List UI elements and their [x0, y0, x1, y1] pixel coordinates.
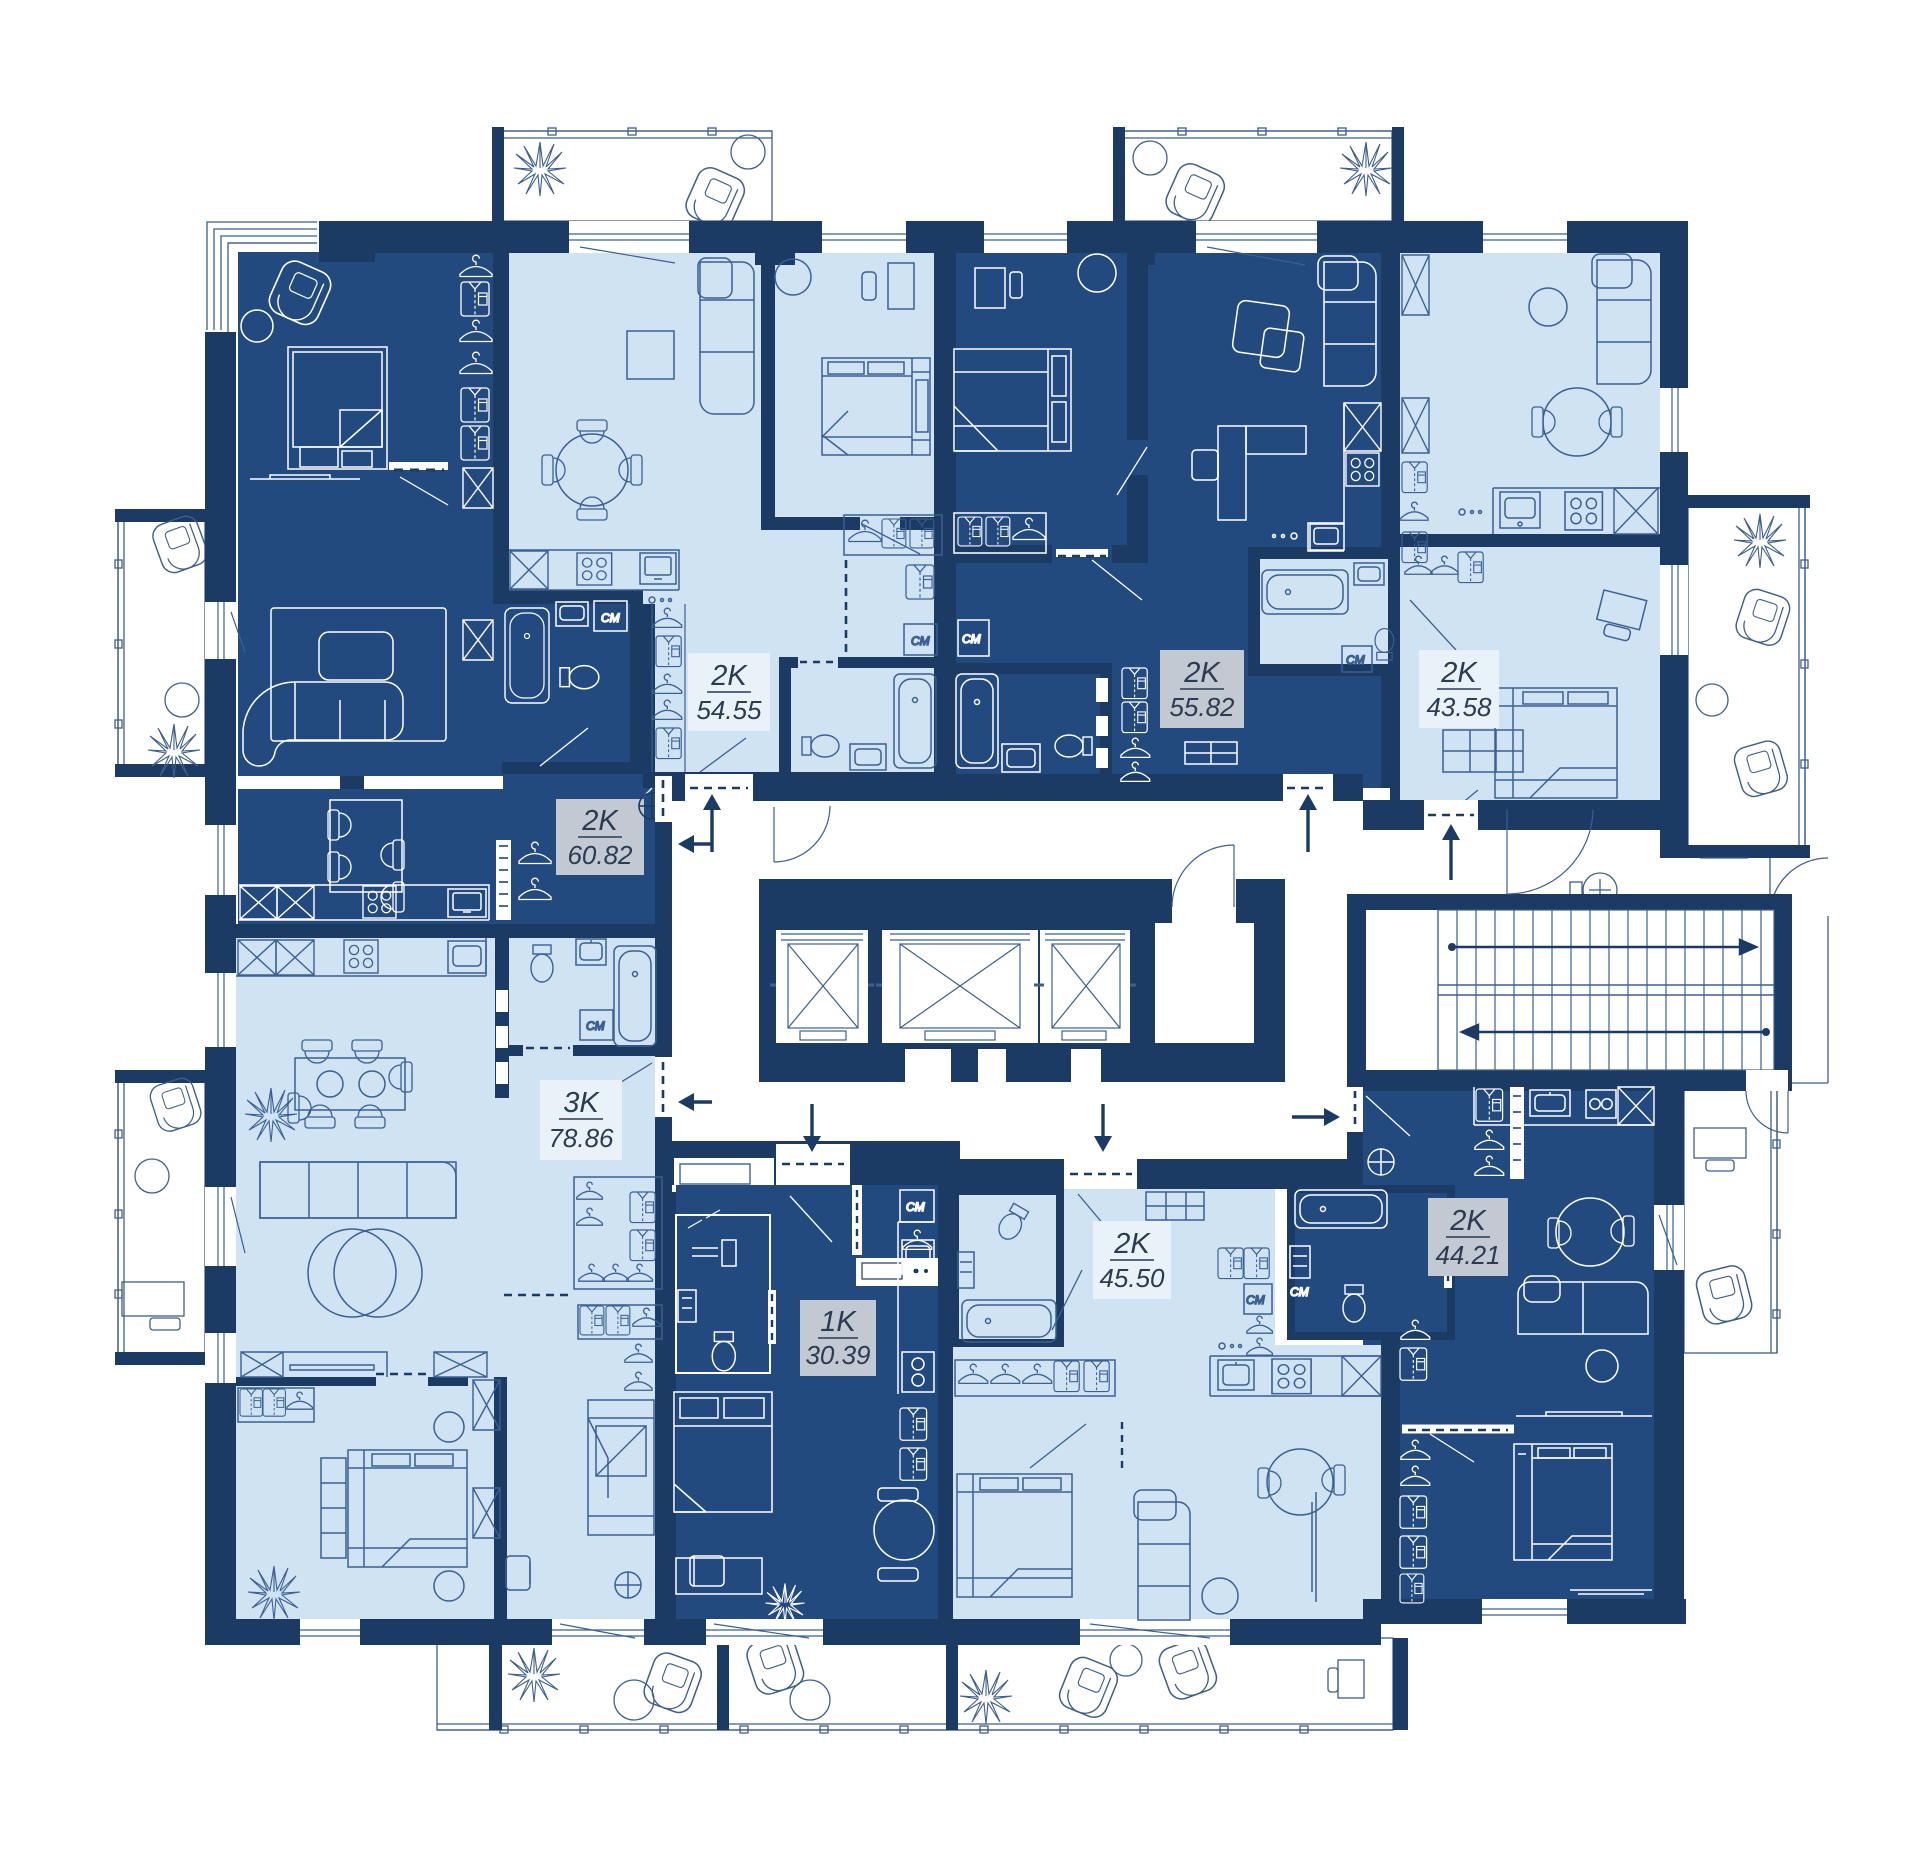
svg-text:CM: CM: [601, 611, 620, 625]
svg-text:2K: 2K: [1440, 657, 1478, 689]
svg-text:54.55: 54.55: [696, 695, 762, 725]
svg-text:CM: CM: [906, 1200, 925, 1214]
svg-text:CM: CM: [962, 632, 981, 646]
svg-text:30.39: 30.39: [805, 1340, 870, 1370]
svg-text:60.82: 60.82: [567, 840, 633, 870]
svg-text:CM: CM: [911, 634, 930, 648]
svg-text:45.50: 45.50: [1099, 1263, 1165, 1293]
svg-text:2K: 2K: [1113, 1228, 1151, 1260]
svg-text:44.21: 44.21: [1435, 1240, 1500, 1270]
svg-text:CM: CM: [1346, 653, 1365, 667]
svg-text:CM: CM: [1246, 1293, 1265, 1307]
svg-text:2K: 2K: [581, 805, 619, 837]
svg-text:CM: CM: [586, 1019, 605, 1033]
svg-text:43.58: 43.58: [1426, 692, 1492, 722]
svg-text:2K: 2K: [1183, 657, 1221, 689]
svg-text:2K: 2K: [1449, 1205, 1487, 1237]
svg-text:CM: CM: [1290, 1285, 1309, 1299]
svg-text:3K: 3K: [563, 1087, 600, 1119]
svg-text:78.86: 78.86: [548, 1123, 614, 1153]
svg-text:2K: 2K: [710, 660, 748, 692]
svg-text:1K: 1K: [820, 1306, 857, 1338]
svg-text:55.82: 55.82: [1169, 692, 1235, 722]
